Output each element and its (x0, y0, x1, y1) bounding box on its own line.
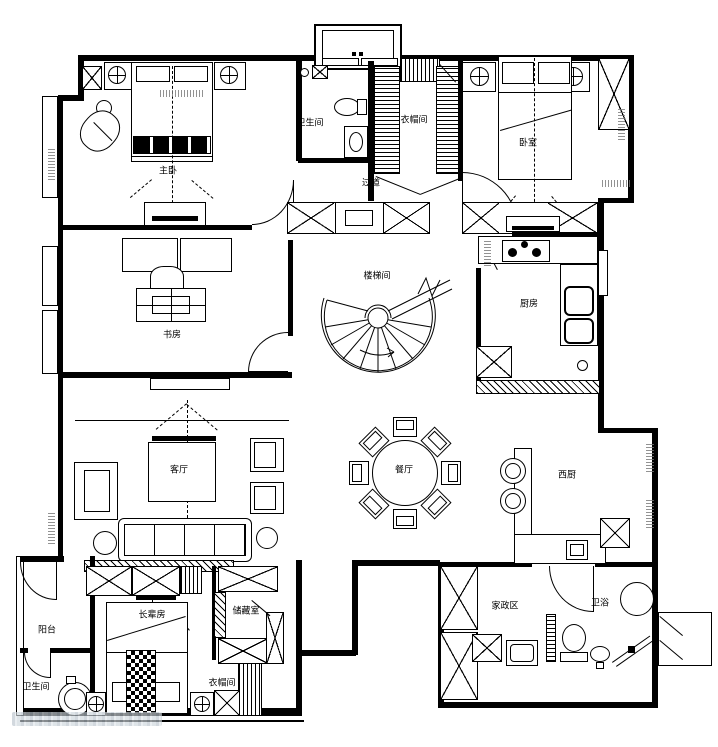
elder-cabinet-x1 (86, 566, 132, 596)
soaking-tub (620, 582, 654, 616)
bath-br-door-arc (549, 566, 593, 612)
kitchen-sink-2 (564, 318, 594, 344)
pedestal-basin (590, 646, 610, 662)
wall-step-westkitchen (598, 428, 658, 433)
corridor-cabinet-niche (345, 210, 373, 226)
bedroom2-bed-line (499, 92, 571, 93)
watermark (12, 712, 162, 726)
toilet-tank-bath-br (560, 652, 588, 662)
master-tv-cabinet (144, 202, 206, 226)
wall-corner-step-h (58, 95, 84, 101)
balcony-door-arc (20, 562, 56, 600)
elder-rack-comb (180, 566, 202, 594)
wall-left-main (58, 95, 63, 562)
cabinet-divider (335, 202, 336, 234)
room-label-living: 客厅 (170, 467, 188, 476)
room-label-bedroom2: 卧室 (519, 140, 537, 149)
flue-checker-block (126, 650, 156, 714)
study-door-arc (248, 332, 288, 372)
downlight-symbol (220, 66, 238, 84)
living-tv (152, 436, 216, 441)
partition-hatch-col (546, 614, 556, 662)
stove-burner (508, 248, 517, 257)
lounge-chair (73, 103, 128, 158)
master-tv-cone-left (130, 179, 152, 198)
storage-hatch-col (214, 592, 226, 638)
bedroom2-cabinet-x1 (463, 203, 499, 233)
basin-pedestal (596, 662, 604, 669)
living-cone-right (186, 404, 217, 430)
window-tag-annotation (618, 108, 625, 140)
utility-cabinet-x1 (440, 566, 478, 630)
room-label-kitchen: 厨房 (520, 301, 538, 310)
wall-notch-vertical (352, 560, 358, 655)
room-label-housekeeping: 家政区 (491, 603, 518, 612)
cloak-rack-top (400, 58, 440, 82)
downlight-symbol (470, 67, 489, 86)
floor-lamp-right (256, 527, 278, 549)
storage-cabinet-x2 (218, 638, 268, 664)
living-armchair-r1-cushion (254, 442, 276, 468)
wall-dining-bottom (355, 560, 440, 566)
wall-tag-annotation (48, 512, 55, 544)
shower-drain-block (628, 646, 635, 653)
cloak-rack-left (374, 66, 400, 174)
washing-machine-panel (66, 676, 76, 684)
wall-master-bottom (58, 225, 252, 230)
bedroom2-pillow-right (538, 62, 570, 84)
downlight-symbol (194, 696, 210, 712)
downlight-symbol (108, 66, 126, 84)
living-opening-line (75, 420, 289, 421)
floor-lamp-left (93, 531, 117, 555)
room-label-elder: 长辈房 (138, 612, 165, 621)
bay-window-study-1 (42, 246, 58, 306)
room-label-storage: 储藏室 (232, 608, 259, 617)
living-cone-left (156, 403, 187, 429)
corridor-cabinet-x1 (288, 203, 334, 233)
washing-machine-drum-inner (64, 688, 86, 710)
window-tag-annotation (646, 442, 654, 472)
elder-tv (136, 596, 176, 600)
master-cabinet-xbox (82, 66, 102, 90)
wall-bath-bottom (298, 158, 372, 163)
bath-bl-door-leaf (50, 652, 51, 678)
utility-washer-inner (510, 644, 534, 662)
downlight-symbol (88, 696, 104, 712)
toilet-tank-top-bath (357, 99, 367, 115)
bar-stool-2 (500, 488, 526, 514)
stove-burner (532, 248, 541, 257)
dining-chair-w (349, 461, 369, 485)
dining-chair-n (393, 417, 417, 437)
master-tv (152, 216, 198, 221)
living-armchair-left-cushion (84, 470, 110, 512)
storage-cabinet-x3 (266, 612, 284, 664)
bar-stool-1 (500, 458, 526, 484)
closet-rack-comb (238, 662, 262, 716)
cloak-chevron-left (376, 176, 421, 195)
downlight-circle (300, 68, 309, 77)
kitchen-fridge-xbox (476, 346, 512, 378)
stove-burner-small (521, 241, 528, 248)
wall-study-right (288, 240, 293, 336)
shaft-xbox-topright (598, 58, 630, 130)
master-tv-cone-right (191, 180, 213, 199)
kitchen-base-hatch (476, 380, 600, 394)
dining-chair-e (441, 461, 461, 485)
room-label-bath-bl: 卫生间 (22, 684, 49, 693)
balcony-door-leaf (56, 562, 57, 600)
master-pillow-left (136, 66, 170, 82)
entry-door-leaf-right (361, 58, 398, 66)
bath-bl-door-arc (24, 652, 50, 678)
toilet-bath-br (562, 624, 586, 652)
bedroom2-tv (512, 226, 554, 230)
bath-vent-xbox (312, 65, 328, 79)
room-label-westkitchen: 西厨 (558, 472, 576, 481)
kitchen-sink-1 (564, 286, 594, 316)
shower-screen-diag-2 (616, 640, 654, 667)
dining-chair-s (393, 509, 417, 529)
westkitchen-xbox (600, 518, 630, 548)
wall-elder-right (296, 560, 302, 716)
study-cabinet-2 (180, 238, 232, 272)
washbasin-bowl (349, 132, 363, 152)
room-label-bath-top: 卫生间 (296, 120, 323, 129)
corridor-cabinet-x2 (384, 203, 429, 233)
room-label-corridor: 过道 (362, 180, 380, 189)
room-label-master: 主卧 (159, 168, 177, 177)
room-label-study: 书房 (163, 332, 181, 341)
room-label-dining: 餐厅 (395, 467, 413, 476)
bay-window-master (42, 96, 58, 198)
storage-cabinet-x1 (218, 566, 278, 592)
floor-drain (577, 360, 588, 371)
room-label-balcony: 阳台 (38, 627, 56, 636)
westkitchen-sink-inner (570, 544, 584, 556)
wall-notch-bottom (300, 650, 356, 656)
master-centerline-dashed (172, 66, 173, 218)
wall-bottom-utility (440, 702, 658, 708)
room-label-stairwell: 楼梯间 (363, 273, 390, 282)
utility-cabinet-x3 (472, 634, 502, 662)
cabinet-divider (383, 202, 384, 234)
westkitchen-counter-bottom (514, 534, 606, 564)
floor-plan: 主卧 卫生间 衣帽间 过道 卧室 (0, 0, 718, 747)
cloak-chevron-right (420, 177, 463, 195)
window-tag-annotation (602, 180, 632, 187)
wall-tag-annotation (160, 90, 204, 97)
master-pillow-right (174, 66, 208, 82)
wall-tag-annotation (484, 240, 491, 266)
room-label-bath-br: 卫浴 (591, 600, 609, 609)
closet-cabinet-xbox (214, 690, 240, 716)
study-wall-niche (150, 378, 230, 390)
entry-door-handle-1 (352, 52, 356, 56)
elder-cabinet-x2 (132, 566, 180, 596)
room-label-cloak-top: 衣帽间 (400, 117, 427, 126)
exterior-platform (658, 612, 712, 666)
wall-top-left (78, 55, 318, 61)
study-desk-line-v (171, 288, 172, 322)
bay-window-study-2 (42, 310, 58, 374)
bedroom2-pillow-left (502, 62, 534, 84)
window-tag-annotation (646, 498, 654, 528)
room-label-closet-b: 衣帽间 (208, 680, 235, 689)
living-armchair-r2-cushion (254, 486, 276, 510)
wall-step-right (600, 198, 634, 203)
living-sofa-seats (124, 524, 246, 556)
entry-door-handle-2 (359, 52, 363, 56)
wall-bath-bl-2 (50, 648, 92, 653)
window-kitchen (598, 250, 608, 296)
wall-tag-annotation (48, 148, 55, 180)
